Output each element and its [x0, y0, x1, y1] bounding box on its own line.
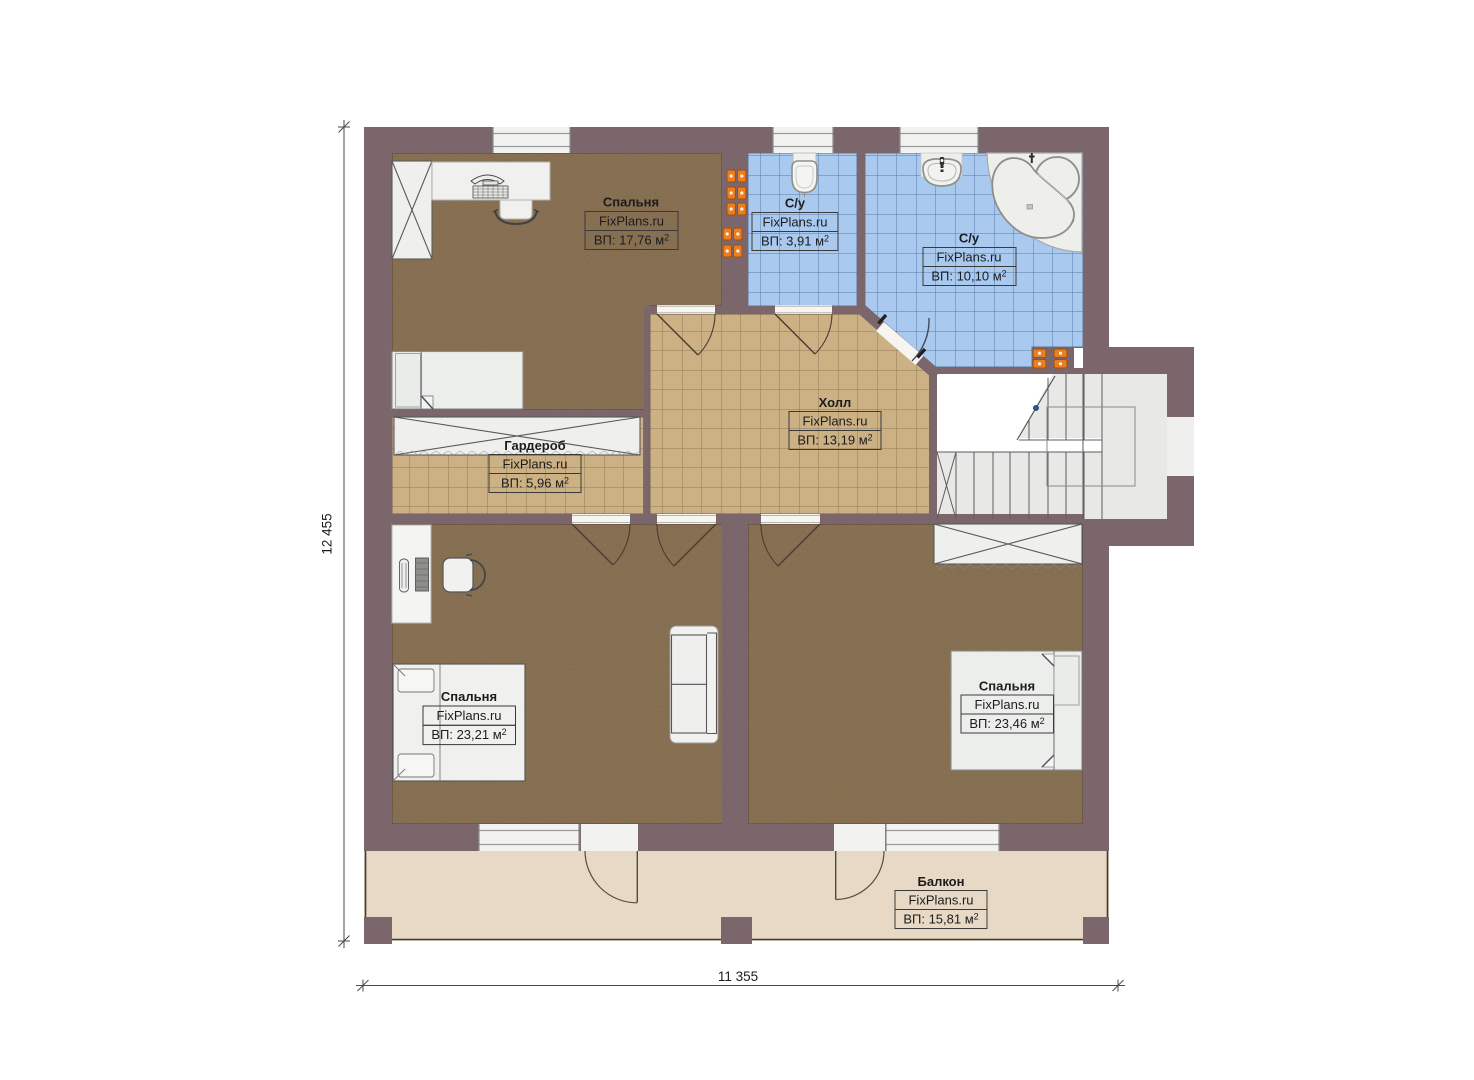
- svg-text:11 355: 11 355: [718, 969, 758, 984]
- svg-text:FixPlans.ru: FixPlans.ru: [802, 414, 867, 429]
- svg-text:ВП: 17,76 м2: ВП: 17,76 м2: [594, 233, 669, 248]
- svg-text:Спальня: Спальня: [441, 689, 497, 704]
- svg-text:ВП: 15,81 м2: ВП: 15,81 м2: [903, 912, 978, 927]
- svg-text:ВП: 10,10 м2: ВП: 10,10 м2: [931, 269, 1006, 284]
- svg-text:12 455: 12 455: [320, 513, 335, 554]
- svg-text:ВП: 13,19 м2: ВП: 13,19 м2: [797, 433, 872, 448]
- svg-text:С/у: С/у: [785, 196, 806, 211]
- svg-text:Спальня: Спальня: [979, 679, 1035, 694]
- svg-text:Гардероб: Гардероб: [504, 438, 565, 453]
- svg-text:Балкон: Балкон: [918, 874, 965, 889]
- svg-text:Спальня: Спальня: [603, 195, 659, 210]
- svg-text:FixPlans.ru: FixPlans.ru: [762, 215, 827, 230]
- svg-text:С/у: С/у: [959, 231, 980, 246]
- svg-text:ВП: 5,96 м2: ВП: 5,96 м2: [501, 476, 569, 491]
- svg-text:FixPlans.ru: FixPlans.ru: [436, 708, 501, 723]
- svg-text:Холл: Холл: [819, 395, 852, 410]
- svg-text:FixPlans.ru: FixPlans.ru: [599, 214, 664, 229]
- svg-text:ВП: 23,46 м2: ВП: 23,46 м2: [969, 716, 1044, 731]
- svg-text:FixPlans.ru: FixPlans.ru: [974, 697, 1039, 712]
- svg-text:FixPlans.ru: FixPlans.ru: [502, 457, 567, 472]
- svg-text:ВП: 3,91 м2: ВП: 3,91 м2: [761, 234, 829, 249]
- svg-text:FixPlans.ru: FixPlans.ru: [936, 250, 1001, 265]
- svg-text:ВП: 23,21 м2: ВП: 23,21 м2: [431, 727, 506, 742]
- svg-text:FixPlans.ru: FixPlans.ru: [908, 893, 973, 908]
